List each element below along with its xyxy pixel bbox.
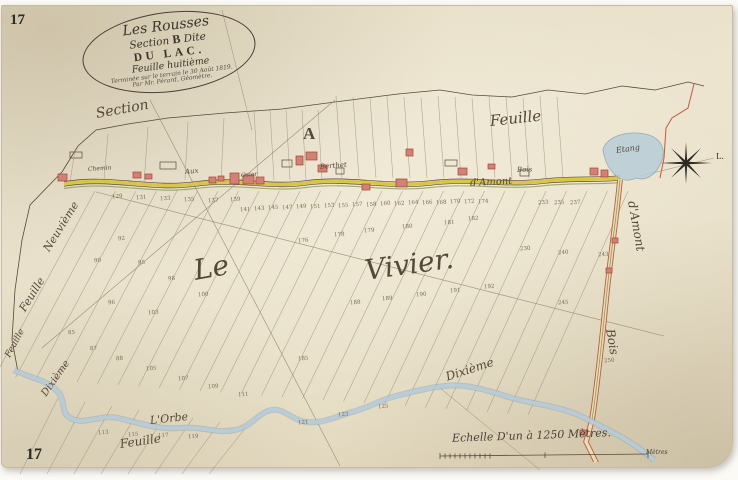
parcel-number: 147 bbox=[282, 205, 293, 212]
parcel-number: 88 bbox=[116, 356, 123, 362]
parcel-number: 137 bbox=[208, 198, 219, 205]
map-label: Aux bbox=[185, 167, 199, 176]
parcel-number: 139 bbox=[230, 197, 241, 204]
parcel-number: 87 bbox=[90, 346, 97, 352]
sheet-number-top: 17 bbox=[10, 12, 25, 29]
map-label: Bois bbox=[517, 165, 532, 174]
parcel-number: 240 bbox=[558, 250, 569, 257]
parcel-number: 131 bbox=[136, 195, 147, 202]
parcel-number: 181 bbox=[444, 220, 455, 227]
parcel-number: 190 bbox=[416, 292, 427, 299]
parcel-number: 141 bbox=[240, 207, 251, 214]
parcel-number: 192 bbox=[484, 284, 495, 291]
parcel-number: 174 bbox=[478, 199, 489, 206]
parcel-number: 172 bbox=[464, 199, 475, 206]
parcel-number: 143 bbox=[254, 206, 265, 213]
parcel-number: 164 bbox=[408, 200, 419, 207]
parcel-number: 191 bbox=[450, 288, 461, 295]
parcel-number: 153 bbox=[324, 203, 335, 210]
parcel-number: 96 bbox=[108, 300, 115, 306]
parcel-number: 113 bbox=[98, 430, 109, 437]
parcel-number: 168 bbox=[436, 200, 447, 207]
parcel-number: 160 bbox=[380, 201, 391, 208]
parcel-number: 182 bbox=[468, 216, 479, 223]
parcel-number: 157 bbox=[352, 202, 363, 209]
parcel-number: 115 bbox=[128, 432, 139, 439]
cartouche-section-letter: B bbox=[172, 32, 182, 47]
parcel-number: 133 bbox=[160, 196, 171, 203]
parcel-number: 125 bbox=[378, 404, 389, 411]
parcel-number: 185 bbox=[298, 356, 309, 363]
parcel-number: 230 bbox=[520, 246, 531, 253]
parcel-number: 233 bbox=[538, 200, 549, 207]
parcel-number: 98 bbox=[168, 276, 175, 282]
parcel-number: 109 bbox=[208, 384, 219, 391]
parcel-number: 121 bbox=[298, 420, 309, 427]
parcel-number: 166 bbox=[422, 200, 433, 207]
map-label: Le bbox=[191, 248, 231, 287]
map-label: Osier bbox=[241, 171, 258, 179]
parcel-number: 85 bbox=[68, 330, 75, 336]
parcel-number: 95 bbox=[138, 260, 145, 266]
parcel-number: 151 bbox=[310, 204, 321, 211]
parcel-number: 90 bbox=[94, 258, 101, 264]
parcel-number: 176 bbox=[298, 238, 309, 245]
parcel-number: 111 bbox=[238, 392, 249, 399]
parcel-number: 170 bbox=[450, 199, 461, 206]
parcel-number: 135 bbox=[184, 197, 195, 204]
parcel-number: 149 bbox=[296, 204, 307, 211]
sheet-number-bottom: 17 bbox=[26, 446, 42, 464]
parcel-number: 189 bbox=[382, 296, 393, 303]
parcel-number: 100 bbox=[198, 292, 209, 299]
parcel-number: 245 bbox=[558, 300, 569, 307]
parcel-number: 243 bbox=[598, 252, 609, 259]
parcel-number: 250 bbox=[604, 358, 615, 365]
parcel-number: 123 bbox=[338, 412, 349, 419]
parcel-number: 237 bbox=[570, 200, 581, 207]
parcel-number: 129 bbox=[112, 194, 123, 201]
parcel-number: 92 bbox=[118, 236, 125, 242]
parcel-number: 103 bbox=[148, 310, 159, 317]
parcel-number: 180 bbox=[402, 224, 413, 231]
parcel-number: 117 bbox=[158, 433, 169, 440]
parcel-number: 155 bbox=[338, 203, 349, 210]
parcel-number: 158 bbox=[366, 202, 377, 209]
parcel-number: 178 bbox=[334, 232, 345, 239]
parcel-number: 188 bbox=[350, 300, 361, 307]
map-label: A bbox=[303, 124, 315, 144]
map-label: d'Amont bbox=[470, 176, 513, 189]
parcel-number: 179 bbox=[364, 228, 375, 235]
compass-east-label: L. bbox=[716, 152, 724, 161]
parcel-number: 145 bbox=[268, 205, 279, 212]
parcel-number: 105 bbox=[146, 366, 157, 373]
parcel-number: 119 bbox=[188, 434, 199, 441]
scale-end-label: Mètres bbox=[646, 449, 668, 456]
parcel-number: 107 bbox=[178, 376, 189, 383]
parcel-number: 162 bbox=[394, 201, 405, 208]
parcel-number: 235 bbox=[554, 200, 565, 207]
